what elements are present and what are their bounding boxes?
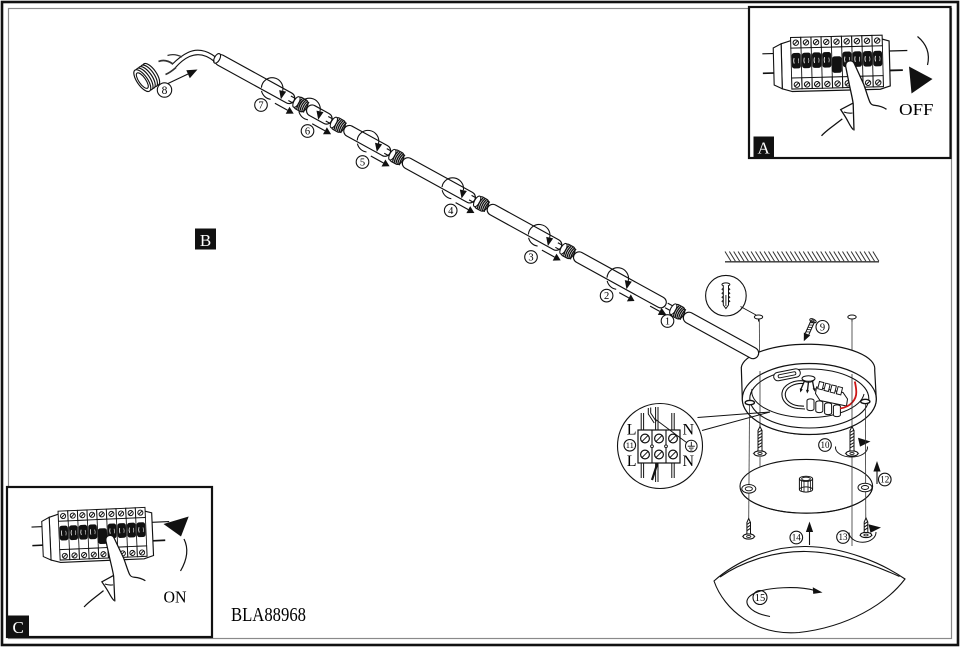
svg-text:5: 5 <box>360 158 365 169</box>
svg-text:C: C <box>13 618 24 637</box>
svg-text:12: 12 <box>880 475 889 485</box>
svg-text:B: B <box>200 231 211 250</box>
svg-text:A: A <box>758 139 771 158</box>
svg-text:4: 4 <box>448 206 454 217</box>
svg-text:ON: ON <box>164 588 187 607</box>
svg-text:N: N <box>683 453 695 470</box>
svg-text:11: 11 <box>626 440 634 450</box>
svg-text:7: 7 <box>258 101 263 112</box>
svg-text:BLA88968: BLA88968 <box>231 604 306 626</box>
svg-text:13: 13 <box>839 532 849 542</box>
svg-text:6: 6 <box>305 127 310 138</box>
svg-text:L: L <box>627 422 637 439</box>
svg-text:L: L <box>627 453 637 470</box>
svg-text:2: 2 <box>604 291 609 302</box>
svg-text:15: 15 <box>755 593 766 604</box>
svg-text:14: 14 <box>792 533 802 543</box>
svg-text:OFF: OFF <box>899 100 934 119</box>
svg-text:9: 9 <box>820 323 825 334</box>
svg-text:3: 3 <box>528 253 533 264</box>
svg-text:8: 8 <box>162 85 168 97</box>
svg-text:N: N <box>683 422 695 439</box>
svg-text:10: 10 <box>821 440 831 450</box>
svg-text:1: 1 <box>665 317 670 328</box>
